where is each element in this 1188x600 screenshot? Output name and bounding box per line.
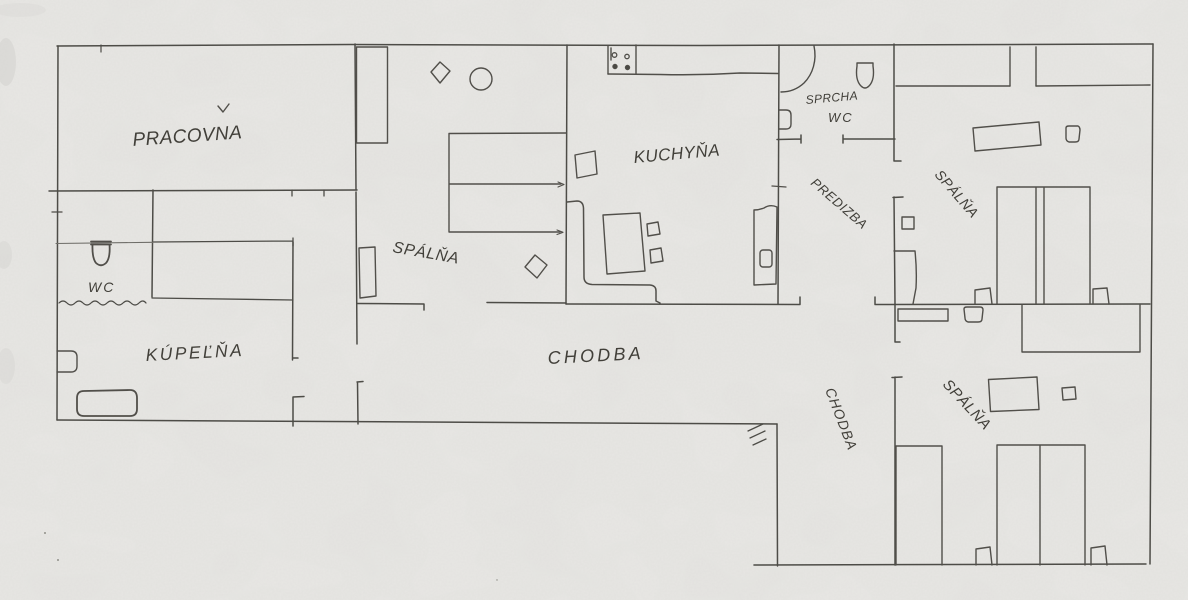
svg-text:WC: WC [828, 110, 854, 125]
svg-text:WC: WC [88, 279, 115, 295]
